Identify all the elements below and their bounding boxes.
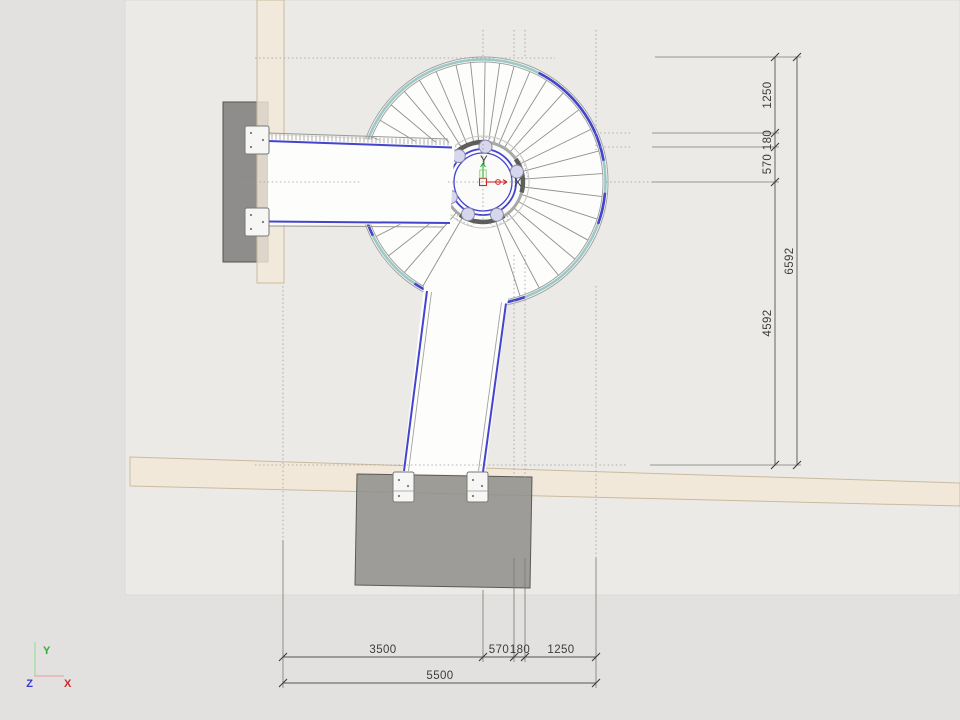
dim-label-1250-bottom: 1250: [547, 644, 574, 656]
connection-plate: [467, 472, 488, 502]
dim-label-5500: 5500: [426, 670, 453, 682]
dim-label-3500: 3500: [369, 644, 396, 656]
staircase-plan-drawing: X Y 1250 180 570 4592 6592 3500 570 180 …: [0, 0, 960, 720]
upper-walkway: [245, 126, 455, 236]
dim-label-180-right: 180: [762, 130, 774, 150]
connection-plate: [393, 472, 414, 502]
dim-label-570-bottom: 570: [489, 644, 509, 656]
view-y-label: Y: [43, 645, 51, 657]
connection-plate: [245, 208, 269, 236]
view-x-label: X: [64, 678, 72, 690]
lower-landing-slab: [355, 474, 532, 588]
dim-label-570-right: 570: [762, 154, 774, 174]
dim-label-180-bottom: 180: [510, 644, 530, 656]
dim-label-1250-right: 1250: [762, 81, 774, 108]
dim-label-4592: 4592: [762, 309, 774, 336]
view-z-label: Z: [26, 678, 33, 690]
cad-viewport[interactable]: X Y 1250 180 570 4592 6592 3500 570 180 …: [0, 0, 960, 720]
origin-x-label: X: [514, 178, 522, 190]
connection-plate: [245, 126, 269, 154]
origin-y-label: Y: [480, 155, 488, 167]
upper-walkway-deck: [268, 135, 455, 225]
dim-label-6592: 6592: [784, 247, 796, 274]
